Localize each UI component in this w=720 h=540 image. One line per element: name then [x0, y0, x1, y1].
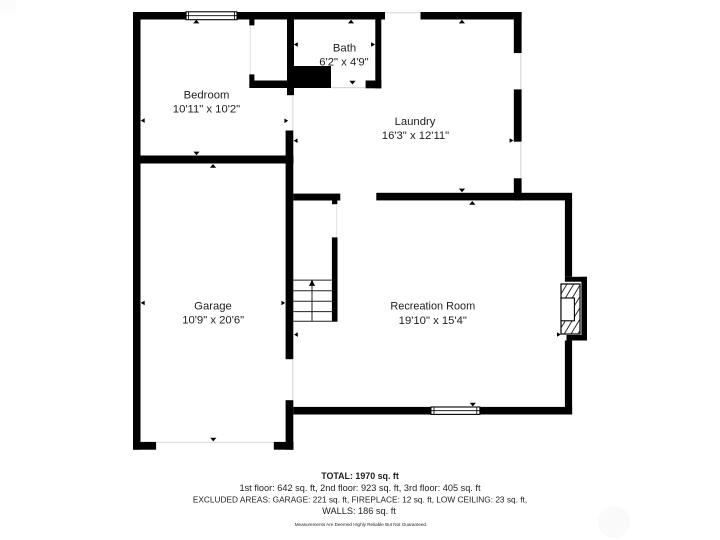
svg-text:Bath: Bath	[333, 43, 356, 55]
svg-text:Laundry: Laundry	[395, 116, 436, 128]
svg-text:16'3" x 12'11": 16'3" x 12'11"	[382, 130, 449, 142]
svg-text:10'9" x 20'6": 10'9" x 20'6"	[182, 315, 244, 327]
svg-text:TOTAL: 1970 sq. ft: TOTAL: 1970 sq. ft	[321, 471, 399, 481]
svg-text:Bedroom: Bedroom	[184, 90, 230, 102]
svg-text:Measurements Are Deemed Highly: Measurements Are Deemed Highly Reliable …	[295, 522, 428, 527]
svg-text:Recreation Room: Recreation Room	[390, 301, 475, 313]
svg-text:WALLS: 186 sq. ft: WALLS: 186 sq. ft	[322, 506, 396, 516]
svg-text:EXCLUDED AREAS: GARAGE: 221 sq: EXCLUDED AREAS: GARAGE: 221 sq. ft, FIRE…	[193, 495, 527, 505]
svg-text:1st floor: 642 sq. ft, 2nd flo: 1st floor: 642 sq. ft, 2nd floor: 923 sq…	[239, 483, 480, 493]
svg-text:19'10" x 15'4": 19'10" x 15'4"	[399, 315, 467, 327]
svg-text:10'11" x 10'2": 10'11" x 10'2"	[173, 104, 240, 116]
svg-text:Garage: Garage	[194, 300, 232, 312]
